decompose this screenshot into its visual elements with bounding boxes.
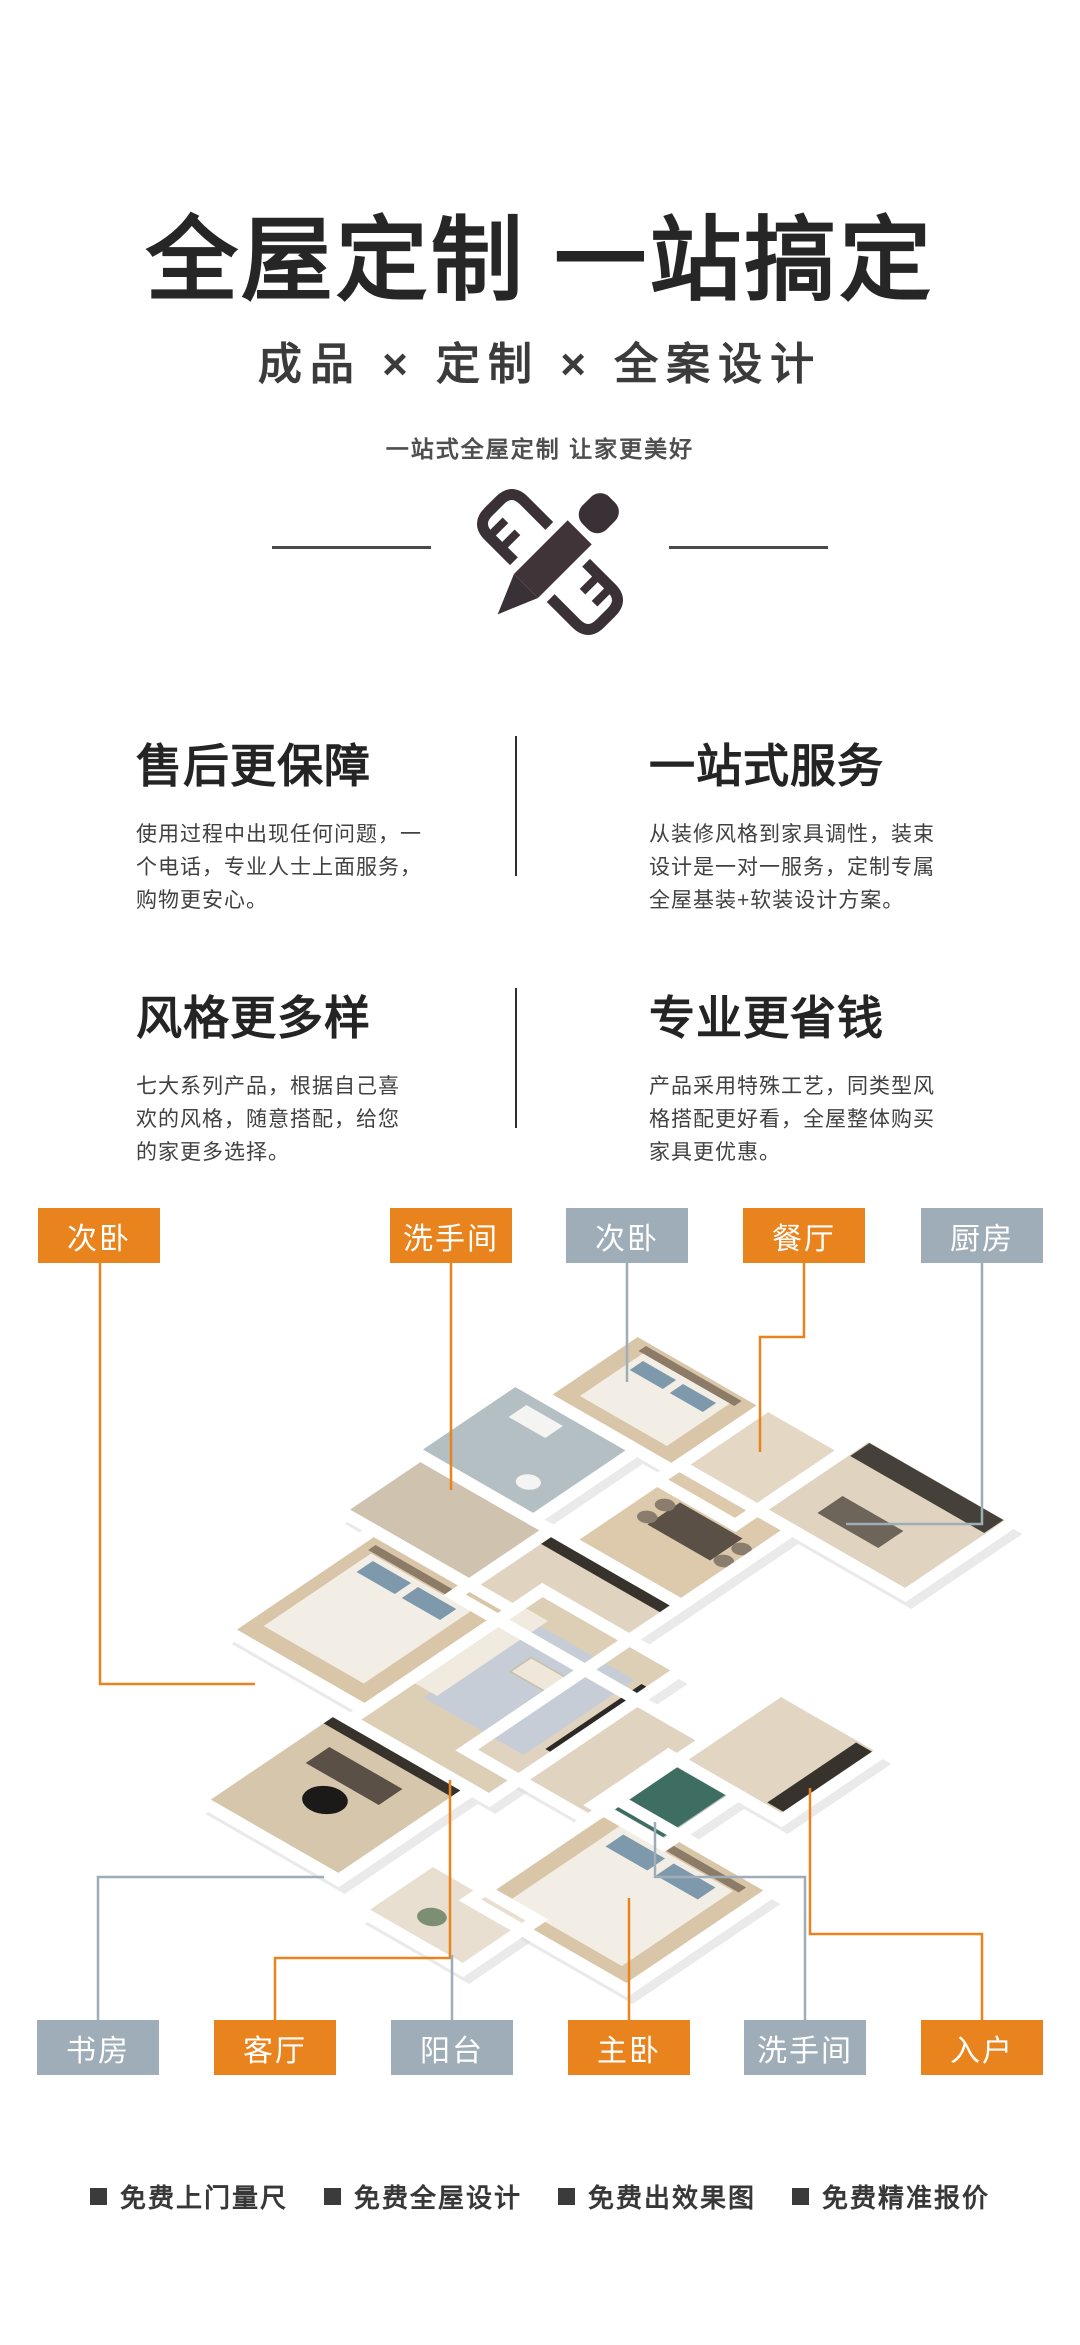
room-label-entry: 入户 (921, 2020, 1043, 2075)
bullet-square-icon (90, 2188, 107, 2205)
room-label-bathroom-top: 洗手间 (390, 1208, 512, 1263)
service-item: 免费精准报价 (792, 2178, 990, 2215)
service-label: 免费上门量尺 (120, 2178, 288, 2215)
room-label-kitchen: 厨房 (921, 1208, 1043, 1263)
promo-page: 全屋定制 一站搞定 成品 × 定制 × 全案设计 一站式全屋定制 让家更美好 售… (0, 0, 1080, 2345)
pencil-ruler-icon (442, 444, 668, 670)
room-label-study: 书房 (37, 2020, 159, 2075)
service-item: 免费上门量尺 (90, 2178, 288, 2215)
room-label-living: 客厅 (214, 2020, 336, 2075)
service-item: 免费出效果图 (558, 2178, 756, 2215)
bullet-square-icon (324, 2188, 341, 2205)
service-label: 免费出效果图 (588, 2178, 756, 2215)
floor-plan (19, 1300, 1080, 2044)
bullet-square-icon (792, 2188, 809, 2205)
room-label-bedroom2-top: 次卧 (566, 1208, 688, 1263)
service-item: 免费全屋设计 (324, 2178, 522, 2215)
room-label-balcony: 阳台 (391, 2020, 513, 2075)
room-label-bathroom-bottom: 洗手间 (744, 2020, 866, 2075)
service-label: 免费全屋设计 (354, 2178, 522, 2215)
footer-services: 免费上门量尺 免费全屋设计 免费出效果图 免费精准报价 (0, 2178, 1080, 2215)
graphics-overlay (0, 0, 1080, 2345)
service-label: 免费精准报价 (822, 2178, 990, 2215)
room-label-master: 主卧 (568, 2020, 690, 2075)
room-label-dining: 餐厅 (743, 1208, 865, 1263)
bullet-square-icon (558, 2188, 575, 2205)
room-label-bedroom2-left: 次卧 (38, 1208, 160, 1263)
